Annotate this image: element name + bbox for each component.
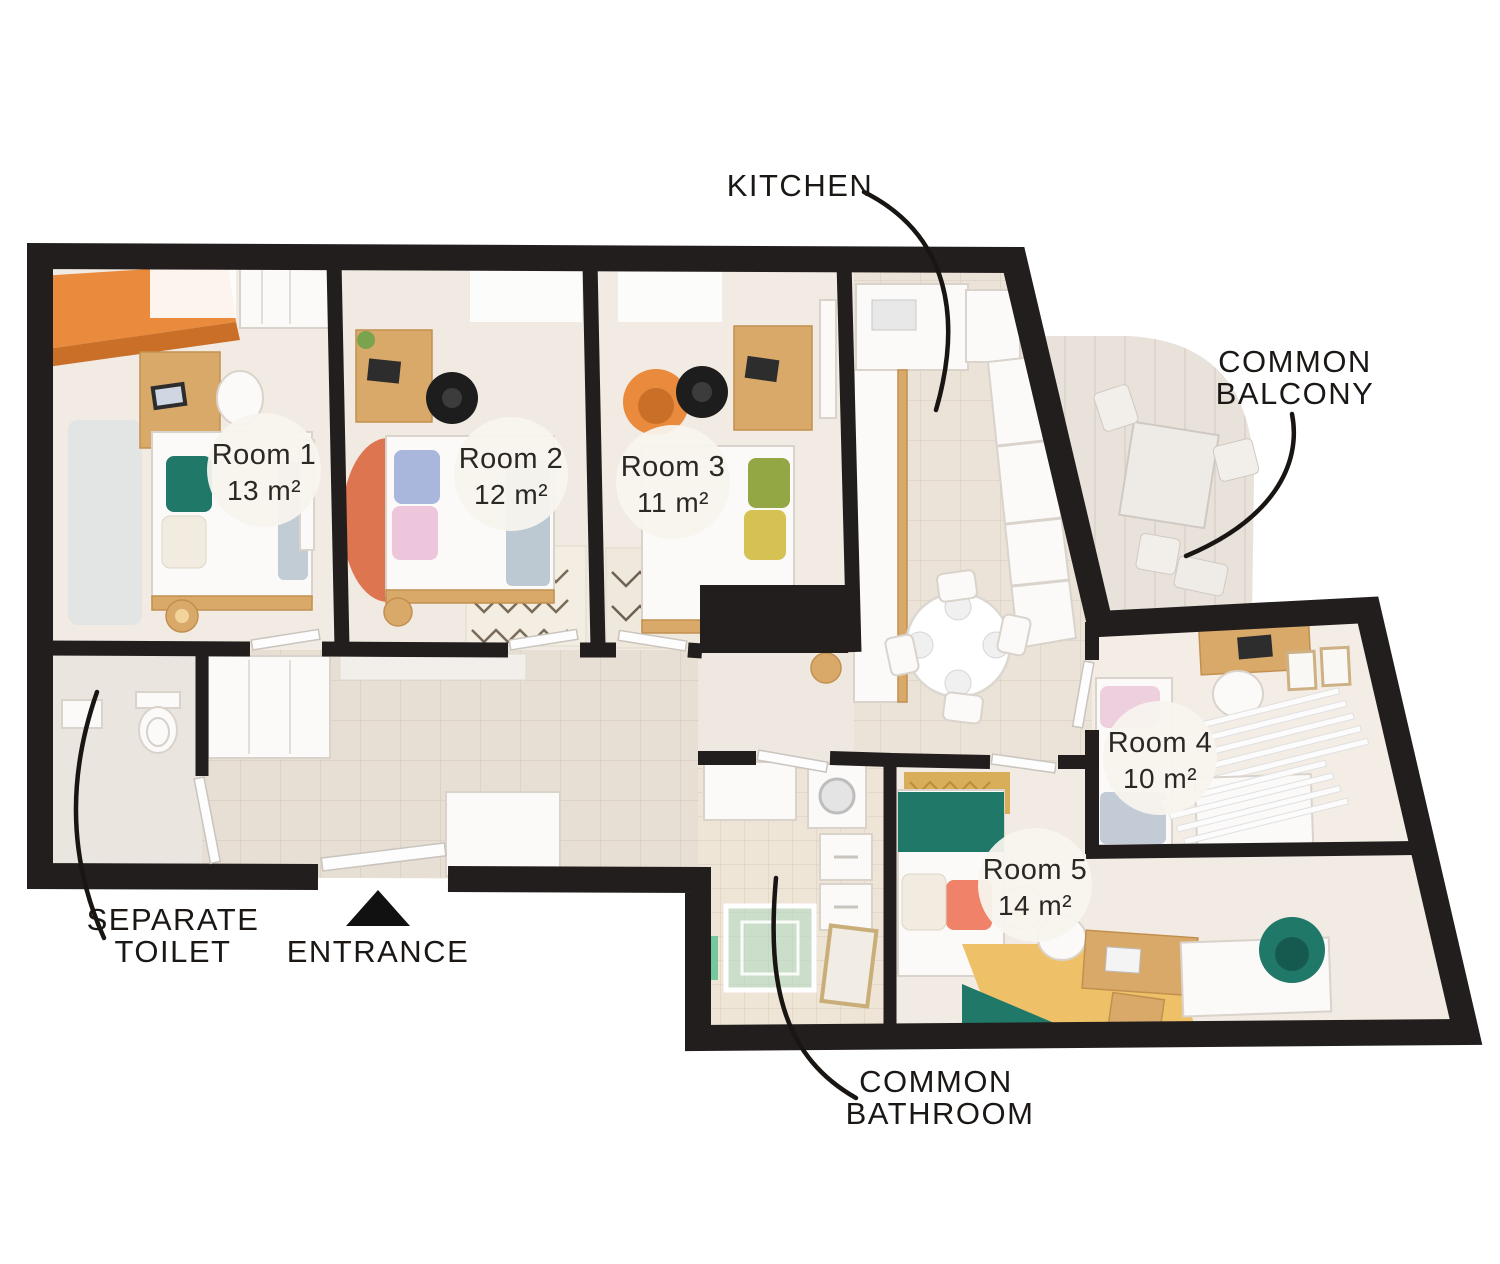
window-curtain: [470, 266, 582, 322]
bathroom-label-line2: BATHROOM: [846, 1096, 1035, 1131]
kitchen-label: KITCHEN: [727, 168, 874, 203]
laptop: [1105, 947, 1141, 973]
wall-jog: [700, 585, 848, 653]
floorplan-svg: KITCHEN COMMON BALCONY SEPARATE TOILET E…: [0, 0, 1500, 1264]
lamp: [175, 609, 189, 623]
wardrobe-row: [208, 656, 330, 758]
room-1-area: 13 m²: [227, 475, 301, 506]
pillow-lavender: [394, 450, 440, 504]
entry-console: [446, 792, 560, 876]
room-5-area: 14 m²: [998, 890, 1072, 921]
wardrobe: [240, 266, 330, 328]
window-curtain: [618, 266, 722, 322]
wall-frame: [1287, 651, 1316, 689]
entrance-label: ENTRANCE: [287, 934, 470, 969]
separate-toilet-label-line2: TOILET: [115, 934, 232, 969]
wall-room4-room5: [1086, 848, 1414, 852]
toilet-tank: [136, 692, 180, 708]
washer-door: [820, 779, 854, 813]
toilet-floor: [40, 650, 202, 878]
pillow-yellow: [744, 510, 786, 560]
shower: [726, 906, 814, 990]
headboard-teal: [898, 792, 1004, 852]
dining-chair: [936, 569, 978, 602]
stool: [811, 653, 841, 683]
bathroom-label-line1: COMMON: [859, 1064, 1013, 1099]
outdoor-chair: [1135, 533, 1181, 575]
side-lamp: [384, 598, 412, 626]
entrance-arrow-icon: [346, 890, 410, 926]
wall-rooms-corridor: [40, 648, 702, 651]
vanity: [704, 762, 796, 820]
shelf: [62, 700, 102, 728]
room-1-name: Room 1: [212, 439, 317, 471]
plant: [357, 331, 375, 349]
wall-room1-room2: [334, 262, 342, 648]
laptop: [745, 356, 780, 382]
room-3-area: 11 m²: [637, 487, 709, 518]
room-2-badge: Room 2 12 m²: [454, 417, 568, 531]
pillow-cream: [902, 874, 946, 930]
room-5-name: Room 5: [983, 854, 1088, 886]
mirror-frame: [822, 925, 877, 1006]
shelf-long: [340, 654, 526, 680]
dining-chair: [942, 692, 983, 724]
room-3-name: Room 3: [621, 451, 726, 483]
outdoor-table: [1119, 422, 1219, 528]
bed-frame: [386, 590, 554, 603]
separate-toilet-label-line1: SEPARATE: [87, 902, 260, 937]
wall-room3-kitchen: [844, 262, 854, 652]
wall-frame: [1321, 647, 1350, 685]
pillow-teal: [166, 456, 212, 512]
sink: [872, 300, 916, 330]
room-2-area: 12 m²: [474, 479, 548, 510]
radiator: [820, 300, 836, 418]
room-4-name: Room 4: [1108, 727, 1213, 759]
laptop: [367, 358, 401, 383]
balcony-label-line2: BALCONY: [1216, 376, 1375, 411]
wall-room2-room3: [590, 262, 598, 648]
room-4-badge: Room 4 10 m²: [1103, 701, 1217, 815]
room-4-area: 10 m²: [1123, 763, 1197, 794]
room-1-badge: Room 1 13 m²: [207, 413, 321, 527]
pillow-cream: [162, 516, 206, 568]
laptop: [1237, 635, 1273, 660]
rug: [68, 420, 142, 625]
room-2-name: Room 2: [459, 443, 564, 475]
floor-plan-canvas: KITCHEN COMMON BALCONY SEPARATE TOILET E…: [0, 0, 1500, 1264]
room-3-badge: Room 3 11 m²: [616, 425, 730, 539]
balcony-label-line1: COMMON: [1218, 344, 1372, 379]
window-curtain: [150, 266, 236, 318]
pillow-pink: [392, 506, 438, 560]
pillow-green: [748, 458, 790, 508]
room-5-badge: Room 5 14 m²: [978, 828, 1092, 942]
